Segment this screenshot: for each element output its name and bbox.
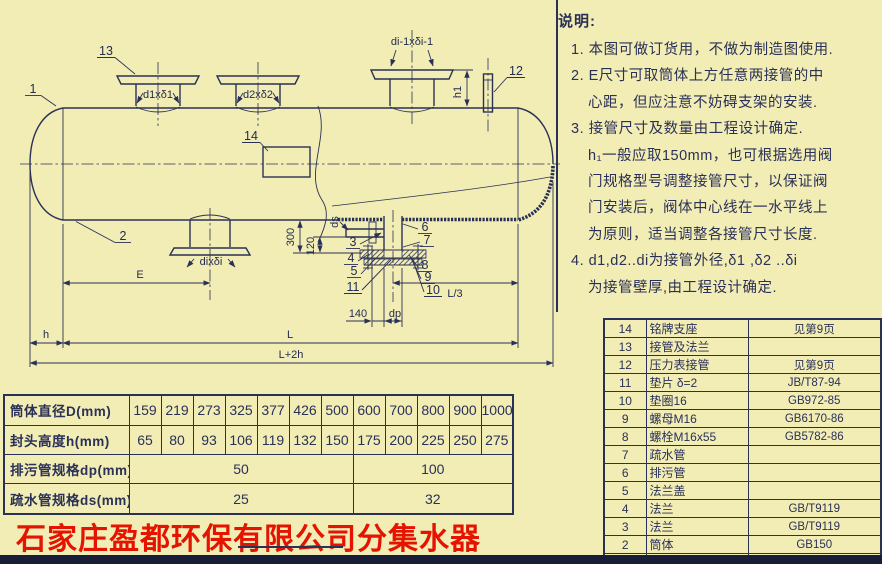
cell-merged: 25 (129, 484, 353, 514)
part-name: 压力表接管 (646, 356, 748, 374)
part-label-10: 10 (426, 283, 440, 297)
part-name: 接管及法兰 (646, 338, 748, 356)
table-row: 5法兰盖 (604, 482, 881, 500)
part-label-7: 7 (424, 233, 431, 247)
note-line: 为原则，适当调整各接管尺寸长度. (558, 222, 880, 248)
part-label-12: 12 (509, 64, 523, 78)
part-remark: 见第9页 (748, 356, 881, 374)
part-label-2: 2 (120, 229, 127, 243)
table-row: 6排污管 (604, 464, 881, 482)
cell: 275 (481, 425, 513, 454)
part-no: 2 (604, 536, 646, 554)
dim-label-L: L (287, 329, 293, 341)
dim-label-di-1: di-1xδi-1 (391, 36, 433, 48)
center-lines (20, 30, 560, 302)
cell: 65 (129, 425, 161, 454)
table-row: 14铭牌支座见第9页 (604, 319, 881, 338)
cell: 700 (385, 395, 417, 425)
dim-label-300: 300 (285, 228, 297, 246)
note-line: 3. 接管尺寸及数量由工程设计确定. (558, 116, 880, 142)
part-name: 排污管 (646, 464, 748, 482)
cell: 600 (353, 395, 385, 425)
part-name: 法兰 (646, 500, 748, 518)
dim-label-120: 120 (305, 237, 317, 255)
vessel-outline (30, 106, 553, 242)
note-line: 2. E尺寸可取筒体上方任意两接管的中 (558, 63, 880, 89)
part-remark: JB/T87-94 (748, 374, 881, 392)
part-remark: 见第9页 (748, 319, 881, 338)
dim-label-E: E (136, 269, 143, 281)
cell: 200 (385, 425, 417, 454)
part-name: 螺母M16 (646, 410, 748, 428)
dim-label-140: 140 (349, 308, 367, 320)
cell: 175 (353, 425, 385, 454)
part-no: 13 (604, 338, 646, 356)
part-no: 3 (604, 518, 646, 536)
table-row: 13接管及法兰 (604, 338, 881, 356)
cell: 132 (289, 425, 321, 454)
part-remark: GB/T9119 (748, 518, 881, 536)
table-row: 4法兰GB/T9119 (604, 500, 881, 518)
part-no: 11 (604, 374, 646, 392)
row-label: 疏水管规格ds(mm) (4, 484, 129, 514)
part-name: 法兰盖 (646, 482, 748, 500)
table-row: 11垫片 δ=2JB/T87-94 (604, 374, 881, 392)
part-label-5: 5 (351, 264, 358, 278)
part-name: 垫片 δ=2 (646, 374, 748, 392)
part-label-3: 3 (350, 235, 357, 249)
cell: 150 (321, 425, 353, 454)
part-name: 法兰 (646, 518, 748, 536)
note-line: 门规格型号调整接管尺寸，以保证阀 (558, 169, 880, 195)
part-label-4: 4 (348, 251, 355, 265)
part-no: 8 (604, 428, 646, 446)
part-label-11: 11 (347, 280, 360, 294)
notes-title: 说明: (558, 10, 880, 31)
table-row: 3法兰GB/T9119 (604, 518, 881, 536)
dimension-lines (30, 50, 553, 367)
note-line: 为接管壁厚,由工程设计确定. (558, 275, 880, 301)
row-label: 封头高度h(mm) (4, 425, 129, 454)
cell: 106 (225, 425, 257, 454)
part-no: 4 (604, 500, 646, 518)
part-no: 7 (604, 446, 646, 464)
dim-label-h: h (43, 329, 49, 341)
part-name: 疏水管 (646, 446, 748, 464)
part-label-6: 6 (422, 220, 429, 234)
slope-line (332, 177, 550, 206)
part-no: 6 (604, 464, 646, 482)
part-name: 铭牌支座 (646, 319, 748, 338)
technical-drawing: 1 13 14 2 12 3 4 5 11 6 7 8 9 10 d1xδ1 d… (0, 0, 560, 392)
table-row: 9螺母M16GB6170-86 (604, 410, 881, 428)
cell-merged: 100 (353, 454, 513, 483)
part-remark (748, 464, 881, 482)
part-name: 筒体 (646, 536, 748, 554)
part-no: 10 (604, 392, 646, 410)
table-row: 筒体直径D(mm) 159 219 273 325 377 426 500 60… (4, 395, 513, 425)
note-line: 4. d1,d2..di为接管外径,δ1 ,δ2 ..δi (558, 248, 880, 274)
cell: 119 (257, 425, 289, 454)
dim-label-dp: dp (389, 308, 401, 320)
part-label-14: 14 (244, 129, 258, 143)
table-row: 排污管规格dp(mm) 50 100 (4, 454, 513, 483)
part-label-1: 1 (30, 82, 37, 96)
note-line: 心距，但应注意不妨碍支架的安装. (558, 90, 880, 116)
table-row: 封头高度h(mm) 65 80 93 106 119 132 150 175 2… (4, 425, 513, 454)
note-line: 门安装后，阀体中心线在一水平线上 (558, 195, 880, 221)
dim-label-ds: ds (329, 216, 341, 228)
part-no: 12 (604, 356, 646, 374)
table-row: 疏水管规格ds(mm) 25 32 (4, 484, 513, 514)
drawing-labels: 1 13 14 2 12 3 4 5 11 6 7 8 9 10 d1xδ1 d… (30, 36, 523, 361)
dim-label-d2: d2xδ2 (243, 89, 273, 101)
row-label: 排污管规格dp(mm) (4, 454, 129, 483)
table-row: 7疏水管 (604, 446, 881, 464)
cell: 800 (417, 395, 449, 425)
dimensions-table: 筒体直径D(mm) 159 219 273 325 377 426 500 60… (3, 394, 514, 515)
dim-label-di: dixδi (200, 256, 223, 268)
cell: 80 (161, 425, 193, 454)
cell: 900 (449, 395, 481, 425)
notes-panel: 说明: 1. 本图可做订货用，不做为制造图使用. 2. E尺寸可取筒体上方任意两… (558, 10, 880, 301)
part-label-9: 9 (425, 270, 432, 284)
part-remark (748, 482, 881, 500)
table-row: 12压力表接管见第9页 (604, 356, 881, 374)
break-line (315, 106, 326, 242)
cell: 250 (449, 425, 481, 454)
part-no: 5 (604, 482, 646, 500)
cell-merged: 32 (353, 484, 513, 514)
note-line: h₁一般应取150mm，也可根据选用阀 (558, 143, 880, 169)
part-remark (748, 338, 881, 356)
part-remark: GB972-85 (748, 392, 881, 410)
cell: 159 (129, 395, 161, 425)
part-no: 9 (604, 410, 646, 428)
cell: 93 (193, 425, 225, 454)
cell: 325 (225, 395, 257, 425)
part-remark: GB/T9119 (748, 500, 881, 518)
scan-artifact-line (238, 546, 343, 548)
bottom-scan-strip (0, 555, 882, 564)
part-remark (748, 446, 881, 464)
part-no: 14 (604, 319, 646, 338)
nameplate (263, 147, 310, 177)
row-label: 筒体直径D(mm) (4, 395, 129, 425)
part-remark: GB6170-86 (748, 410, 881, 428)
dim-label-d1: d1xδ1 (143, 89, 173, 101)
cell: 377 (257, 395, 289, 425)
cell: 273 (193, 395, 225, 425)
dim-label-h1: h1 (452, 86, 464, 98)
table-row: 2筒体GB150 (604, 536, 881, 554)
scanned-engineering-drawing-page: 1 13 14 2 12 3 4 5 11 6 7 8 9 10 d1xδ1 d… (0, 0, 882, 564)
part-remark: GB5782-86 (748, 428, 881, 446)
part-name: 垫圈16 (646, 392, 748, 410)
note-line: 1. 本图可做订货用，不做为制造图使用. (558, 37, 880, 63)
table-row: 10垫圈16GB972-85 (604, 392, 881, 410)
part-remark: GB150 (748, 536, 881, 554)
table-row: 8螺栓M16x55GB5782-86 (604, 428, 881, 446)
cell: 1000 (481, 395, 513, 425)
dim-label-L2h: L+2h (279, 349, 304, 361)
company-title: 石家庄盈都环保有限公司分集水器 (16, 514, 481, 558)
part-label-13: 13 (99, 44, 113, 58)
cell-merged: 50 (129, 454, 353, 483)
parts-table: 14铭牌支座见第9页 13接管及法兰 12压力表接管见第9页 11垫片 δ=2J… (603, 318, 882, 564)
cell: 500 (321, 395, 353, 425)
dim-label-L3: L/3 (447, 288, 462, 300)
cell: 225 (417, 425, 449, 454)
part-name: 螺栓M16x55 (646, 428, 748, 446)
cell: 426 (289, 395, 321, 425)
cell: 219 (161, 395, 193, 425)
